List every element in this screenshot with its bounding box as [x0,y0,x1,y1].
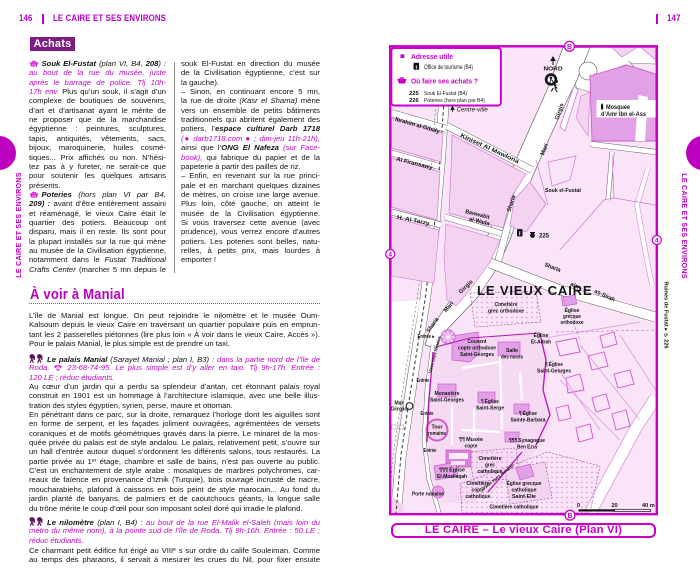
svg-text:Souk el-Fustat: Souk el-Fustat [545,188,581,194]
svg-text:¶¶ Musée: ¶¶ Musée [459,437,483,443]
svg-text:¶¶¶ Église: ¶¶¶ Église [439,466,465,474]
svg-text:Sainte-Barbara: Sainte-Barbara [511,418,547,424]
svg-text:20: 20 [611,503,617,509]
svg-text:Centre-ville: Centre-ville [457,107,489,114]
svg-text:Saint-Georges: Saint-Georges [430,398,464,404]
svg-text:4: 4 [388,252,392,259]
svg-text:NORD: NORD [544,67,563,73]
svg-text:d’Amr Ibn el-Ass: d’Amr Ibn el-Ass [601,111,647,118]
svg-text:El-Adrah: El-Adrah [531,340,551,346]
svg-text:grec: grec [485,463,495,469]
svg-text:0: 0 [577,503,580,509]
svg-text:¶ Église: ¶ Église [481,397,499,405]
svg-text:Ruines de Fustat ▸ ♨ 226: Ruines de Fustat ▸ ♨ 226 [663,282,669,349]
svg-text:Tour: Tour [432,425,444,431]
svg-text:Office de tourisme (B4): Office de tourisme (B4) [424,65,473,71]
svg-text:225: 225 [539,234,550,240]
svg-text:226: 226 [409,98,420,104]
svg-text:Entrée: Entrée [424,448,437,454]
svg-text:Poteries (hors plan par B4): Poteries (hors plan par B4) [424,98,485,104]
svg-text:Saint-Serge: Saint-Serge [476,406,504,412]
svg-text:Girgis: Girgis [391,407,408,413]
svg-text:El-Moallaqah: El-Moallaqah [437,474,468,480]
svg-text:Saint-Georges: Saint-Georges [537,369,571,375]
svg-text:romaine: romaine [428,431,446,437]
svg-text:Église grecque: Église grecque [507,479,542,487]
svg-text:¶¶¶ Synagogue: ¶¶¶ Synagogue [509,438,545,444]
svg-text:catholique: catholique [466,494,491,500]
svg-text:B: B [567,44,572,51]
svg-text:des noces: des noces [501,355,523,361]
svg-text:Entrée: Entrée [417,378,430,384]
svg-text:Cimetière catholique: Cimetière catholique [490,505,539,511]
svg-text:40 m: 40 m [642,503,655,509]
svg-text:225: 225 [409,91,420,97]
svg-text:Souk El-Fustat (B4): Souk El-Fustat (B4) [424,91,467,97]
svg-text:Entrée: Entrée [421,411,434,417]
svg-text:Monastère: Monastère [435,391,460,397]
svg-text:catholique: catholique [512,488,537,494]
svg-text:Saint-Elie: Saint-Elie [512,494,536,500]
svg-text:4: 4 [655,238,659,245]
svg-text:grec orthodoxe: grec orthodoxe [488,309,524,315]
svg-text:copte: copte [465,444,478,450]
svg-text:Église: Église [565,306,580,314]
svg-text:Où faire ses achats ?: Où faire ses achats ? [411,79,478,86]
svg-text:Cimetière: Cimetière [495,302,518,308]
svg-text:LE VIEUX CAIRE: LE VIEUX CAIRE [477,284,593,298]
svg-text:¶ Église: ¶ Église [519,409,537,417]
svg-text:Église: Église [534,331,549,339]
svg-text:¶ Église: ¶ Église [545,360,563,368]
svg-text:Ben Ezra: Ben Ezra [517,445,538,451]
svg-text:orthodoxe: orthodoxe [561,320,584,326]
svg-text:Couvent: Couvent [468,339,487,345]
svg-text:Entrée ▸: Entrée ▸ [418,334,435,340]
svg-text:Porte romaine: Porte romaine [412,492,444,498]
svg-text:Adresse utile: Adresse utile [411,54,453,61]
svg-text:B: B [567,513,572,520]
svg-text:Saint-Georges: Saint-Georges [460,352,494,358]
svg-text:copte orthodoxe: copte orthodoxe [458,346,496,352]
svg-text:Salle: Salle [506,348,518,354]
svg-text:Mosquée: Mosquée [606,104,630,111]
svg-text:Cimetière: Cimetière [479,456,502,462]
